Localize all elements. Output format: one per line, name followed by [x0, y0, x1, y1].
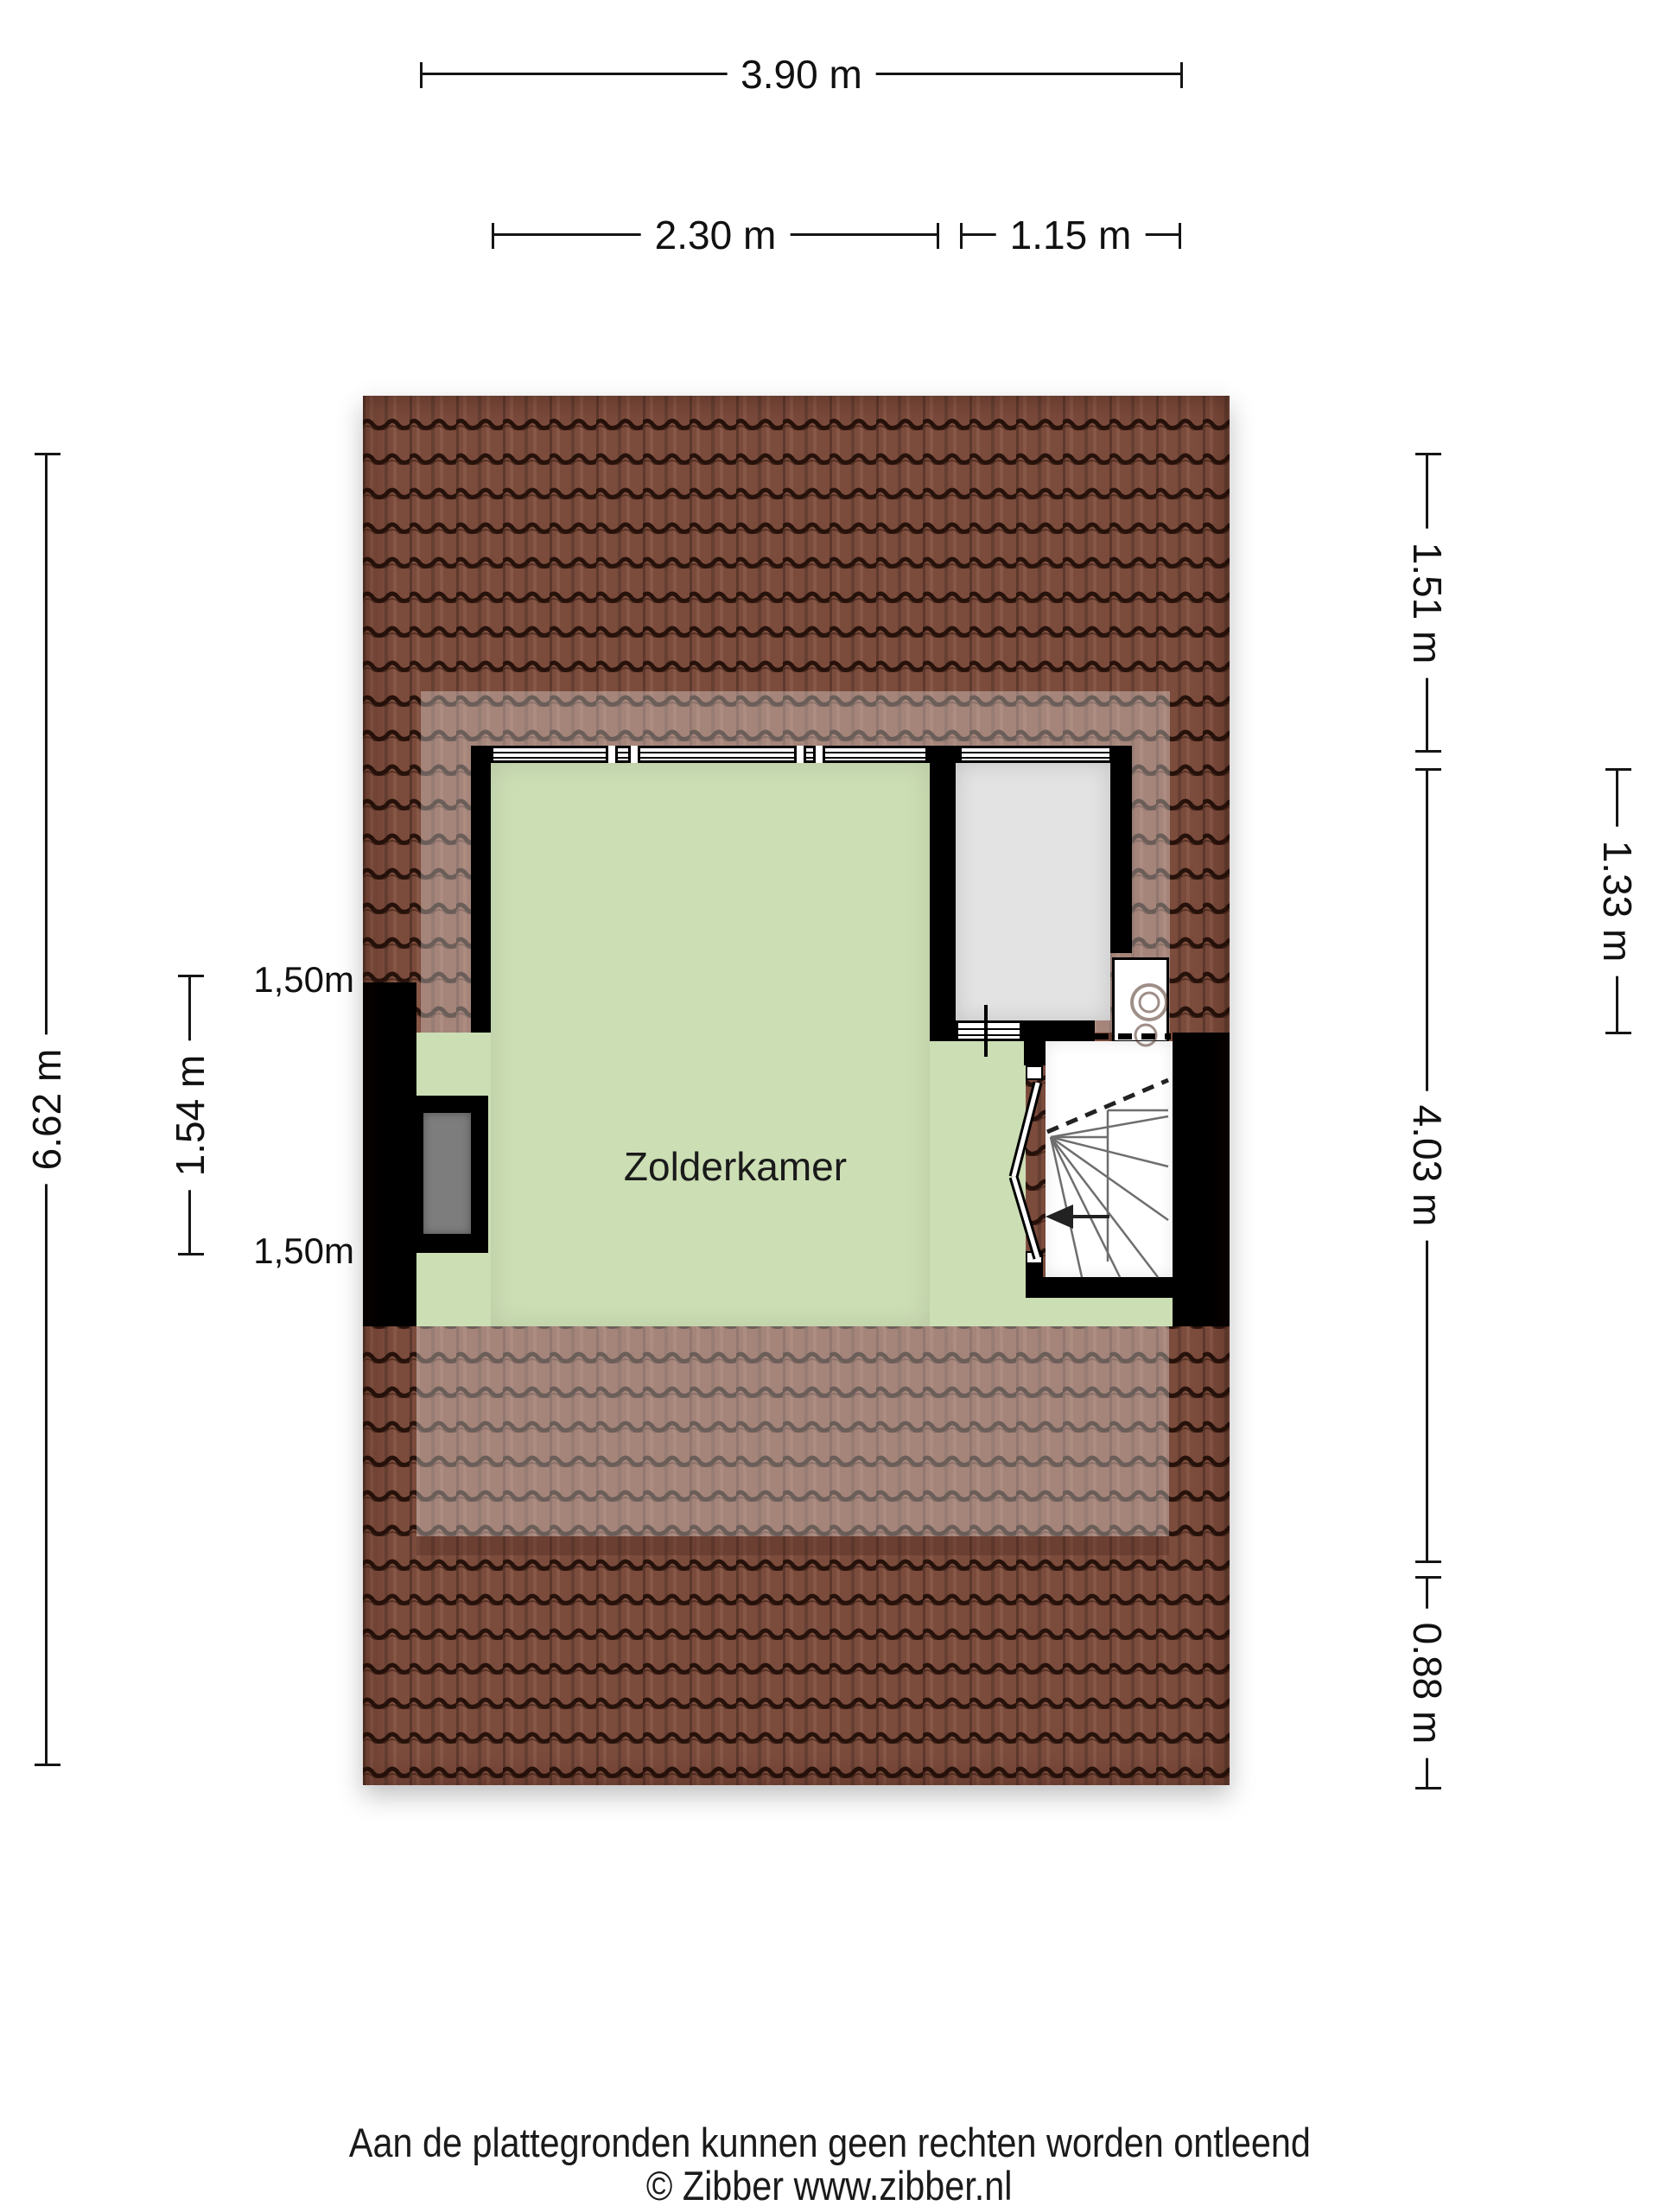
dimension-right-bottom: 0.88 m [1426, 1577, 1428, 1789]
dimension-right-top: 1.51 m [1426, 454, 1428, 752]
storage-room-floor [956, 763, 1110, 1020]
footer-copyright: © Zibber www.zibber.nl [0, 2162, 1659, 2209]
footer-disclaimer: Aan de plattegronden kunnen geen rechten… [0, 2119, 1659, 2166]
glazing-line [493, 757, 925, 759]
tick [35, 1764, 60, 1766]
dimension-label: 1.15 m [996, 212, 1146, 258]
wall-below-door-post [1026, 1264, 1043, 1298]
door-post-bottom [1026, 1251, 1043, 1264]
wall-top-right-corner [1110, 746, 1132, 763]
dormer-overlay-bottom [416, 1326, 1169, 1536]
tick [1415, 453, 1441, 455]
glazing-line [958, 1034, 1020, 1036]
tick [1415, 768, 1441, 771]
footer-line1: Aan de plattegronden kunnen geen rechten… [348, 2119, 1310, 2166]
dimension-label: 2.30 m [641, 212, 791, 258]
wall-pier-between-windows [928, 746, 959, 763]
tick [937, 223, 939, 249]
tick [420, 62, 423, 88]
dimension-top-left: 2.30 m [493, 233, 938, 236]
tick [1415, 1787, 1441, 1789]
wall-stairwell-corner [1024, 1020, 1046, 1065]
wall-left-exterior [363, 982, 416, 1326]
glazing-line [962, 757, 1109, 759]
dimension-left-total: 6.62 m [45, 454, 48, 1765]
gray-room-bottom-sill [956, 1020, 1022, 1041]
tick [1605, 1032, 1631, 1034]
wall-stairwell-right [1173, 1033, 1230, 1326]
opening-dashed-line [1095, 1033, 1171, 1039]
window-mullion [628, 746, 640, 763]
tick [178, 1253, 204, 1255]
door-post-top [1026, 1065, 1043, 1080]
zolderkamer-floor-under-stairs [1026, 1298, 1173, 1326]
glazing-line [958, 1028, 1020, 1030]
tick [178, 975, 204, 977]
tick [960, 223, 963, 249]
window-mullion [606, 746, 618, 763]
dimension-label: 1.51 m [1404, 528, 1451, 677]
wall-gray-room-bottom-left [930, 1020, 956, 1041]
chimney-shaft [423, 1113, 471, 1234]
dimension-label: 0.88 m [1404, 1608, 1451, 1758]
tick [35, 453, 60, 455]
tick [1180, 62, 1183, 88]
height-marker-upper: 1,50m [225, 962, 354, 998]
dimension-top-right: 1.15 m [961, 233, 1180, 236]
dormer-overlay-shadow [416, 1536, 1169, 1555]
glazing-line [962, 752, 1109, 753]
height-marker-lower: 1,50m [225, 1233, 354, 1269]
room-label-zolderkamer: Zolderkamer [624, 1143, 847, 1190]
wall-divider-green-gray [930, 763, 956, 1020]
dimension-label: 6.62 m [23, 1035, 70, 1185]
stairwell-floor [1046, 1041, 1173, 1277]
roof-access-door [1112, 957, 1169, 1043]
dimension-top-total: 3.90 m [421, 73, 1182, 75]
wall-stairwell-bottom [1026, 1277, 1173, 1298]
footer-line2: © Zibber www.zibber.nl [646, 2162, 1013, 2209]
dimension-label: 1.54 m [167, 1040, 213, 1190]
zolderkamer-floor-right-pocket [930, 1041, 1026, 1326]
tick [492, 223, 494, 249]
floorplan-canvas: 3.90 m 2.30 m 1.15 m 6.62 m 1.54 m 1,50m… [0, 0, 1659, 2212]
dimension-right-middle: 4.03 m [1426, 769, 1428, 1562]
glazing-line [493, 752, 925, 753]
window-mullion [813, 746, 825, 763]
tick [1415, 1576, 1441, 1579]
dormer-window-main [491, 746, 928, 763]
tick [1415, 750, 1441, 753]
dimension-label: 3.90 m [727, 51, 876, 98]
tick [1415, 1560, 1441, 1563]
dimension-right-outer: 1.33 m [1616, 769, 1618, 1033]
wall-gray-room-right [1110, 763, 1132, 953]
tick [1179, 223, 1181, 249]
zolderkamer-floor [491, 763, 930, 1326]
dimension-label: 4.03 m [1404, 1091, 1451, 1241]
dormer-window-gray-room [959, 746, 1112, 763]
dimension-left-inner: 1.54 m [188, 976, 191, 1255]
tick [1605, 768, 1631, 771]
wall-left-interior [471, 746, 491, 1033]
window-mullion [794, 746, 806, 763]
dimension-label: 1.33 m [1594, 827, 1641, 976]
